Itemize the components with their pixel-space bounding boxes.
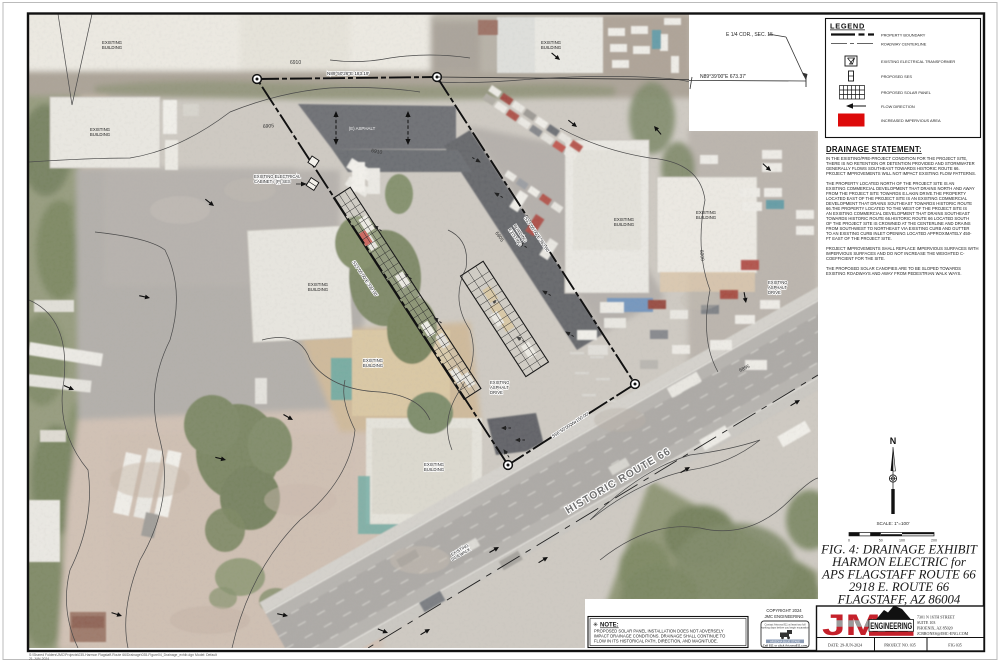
svg-text:working days before you begin: working days before you begin excavation xyxy=(761,626,810,630)
svg-text:FT EAST OF THE PROJECT SITE.: FT EAST OF THE PROJECT SITE. xyxy=(826,236,892,241)
svg-text:SCALE: 1"=100': SCALE: 1"=100' xyxy=(876,521,909,526)
svg-text:E 1/4 COR., SEC. 15: E 1/4 COR., SEC. 15 xyxy=(726,32,773,38)
svg-text:6910: 6910 xyxy=(290,60,301,66)
svg-text:✳: ✳ xyxy=(593,622,598,629)
svg-text:N89°39'00"E 673.37': N89°39'00"E 673.37' xyxy=(700,74,746,80)
svg-text:FLOW IN ITS HISTORICAL PATH, D: FLOW IN ITS HISTORICAL PATH, DIRECTION, … xyxy=(594,639,718,644)
svg-text:EXISTING ROADWAYS AND AWAY FRO: EXISTING ROADWAYS AND AWAY FROM PEDESTRI… xyxy=(826,271,962,276)
svg-text:PROJECT IMPROVEMENTS WILL NOT: PROJECT IMPROVEMENTS WILL NOT IMPACT EXI… xyxy=(826,171,976,176)
svg-text:BUILDING: BUILDING xyxy=(102,45,123,50)
svg-text:21-JUN-2024: 21-JUN-2024 xyxy=(29,657,49,661)
svg-text:CABINET / (P) SES: CABINET / (P) SES xyxy=(254,179,291,184)
svg-text:EXISTING ELECTRICAL TRANSFORME: EXISTING ELECTRICAL TRANSFORMER xyxy=(881,59,955,64)
svg-text:BUILDING: BUILDING xyxy=(363,363,384,368)
svg-text:6900: 6900 xyxy=(698,250,705,262)
svg-text:N89°50'26"E 183.19': N89°50'26"E 183.19' xyxy=(327,71,369,76)
svg-text:BUILDING: BUILDING xyxy=(424,467,445,472)
svg-text:6905: 6905 xyxy=(263,123,275,130)
svg-text:N: N xyxy=(890,436,897,446)
svg-text:DATE: 29-JUN-2024: DATE: 29-JUN-2024 xyxy=(828,643,862,648)
svg-text:FLAGSTAFF, AZ 86004: FLAGSTAFF, AZ 86004 xyxy=(837,593,961,607)
svg-text:JMC ENGINEERING: JMC ENGINEERING xyxy=(764,614,803,619)
svg-text:DRAINAGE STATEMENT:: DRAINAGE STATEMENT: xyxy=(826,145,922,154)
svg-text:DRIVE: DRIVE xyxy=(490,390,503,395)
svg-text:LEGEND: LEGEND xyxy=(830,22,865,31)
svg-text:(E) ASPHALT: (E) ASPHALT xyxy=(349,126,376,131)
svg-text:DRIVE: DRIVE xyxy=(768,290,781,295)
svg-text:Call 811 or click Arizona811.c: Call 811 or click Arizona811.com xyxy=(763,643,808,647)
svg-text:INCREASED IMPERVIOUS AREA: INCREASED IMPERVIOUS AREA xyxy=(881,118,941,123)
svg-text:JCBRONES@JMC-ENG.COM: JCBRONES@JMC-ENG.COM xyxy=(917,631,969,636)
svg-text:SUITE 103: SUITE 103 xyxy=(917,620,935,625)
svg-text:PROPOSED SES: PROPOSED SES xyxy=(881,74,912,79)
svg-text:7301 N 16TH STREET: 7301 N 16TH STREET xyxy=(917,615,955,620)
svg-text:PROJECT NO. 035: PROJECT NO. 035 xyxy=(884,643,916,648)
svg-text:BUILDING: BUILDING xyxy=(696,215,717,220)
svg-text:S:\Shared Folders\JMC\Projects: S:\Shared Folders\JMC\Projects\035-Harmo… xyxy=(29,653,217,657)
svg-text:BUILDING: BUILDING xyxy=(90,132,111,137)
svg-text:BUILDING: BUILDING xyxy=(541,45,562,50)
svg-text:PROPERTY BOUNDARY: PROPERTY BOUNDARY xyxy=(881,33,926,38)
svg-text:ROADWAY CENTERLINE: ROADWAY CENTERLINE xyxy=(881,42,927,47)
svg-text:BUILDING: BUILDING xyxy=(614,222,635,227)
svg-text:FLOW DIRECTION: FLOW DIRECTION xyxy=(881,104,915,109)
svg-text:BUILDING: BUILDING xyxy=(308,287,329,292)
svg-text:ENGINEERING: ENGINEERING xyxy=(870,621,912,631)
svg-text:FIG 035: FIG 035 xyxy=(948,643,961,648)
svg-text:COPYRIGHT 2024: COPYRIGHT 2024 xyxy=(766,608,802,613)
svg-text:PROPOSED SOLAR PANEL: PROPOSED SOLAR PANEL xyxy=(881,90,932,95)
svg-text:COEFFICIENT FOR THE SITE.: COEFFICIENT FOR THE SITE. xyxy=(826,256,885,261)
